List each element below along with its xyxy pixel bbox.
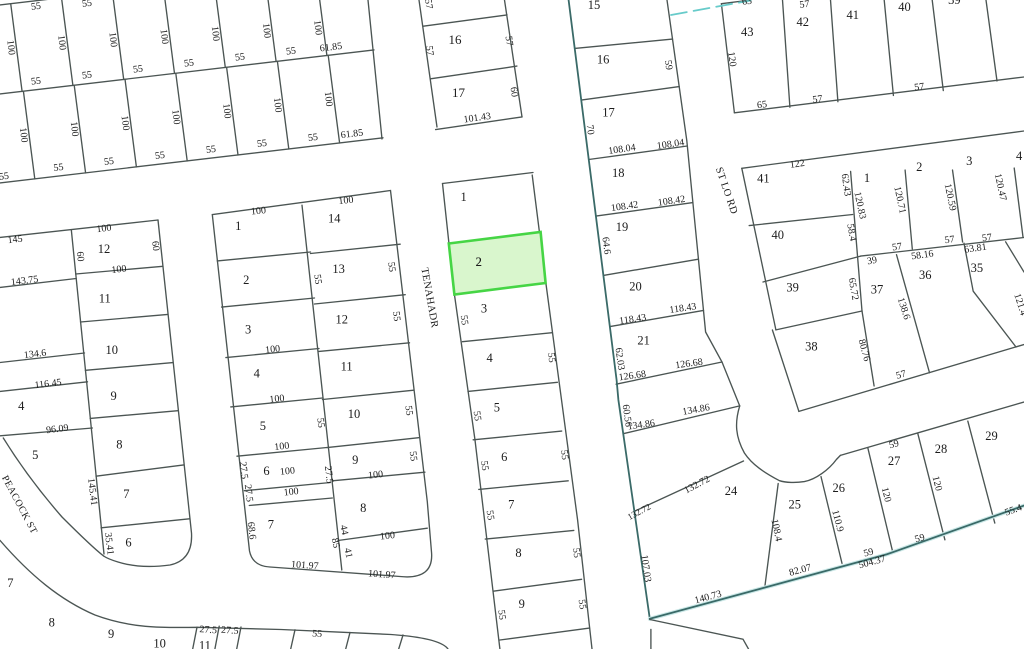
svg-text:26: 26 <box>832 481 845 495</box>
svg-text:57: 57 <box>503 35 515 46</box>
svg-text:55: 55 <box>30 1 41 13</box>
svg-text:100: 100 <box>379 530 395 543</box>
svg-text:14: 14 <box>328 211 341 225</box>
svg-text:100: 100 <box>271 97 284 113</box>
svg-text:20: 20 <box>629 280 642 294</box>
svg-text:55: 55 <box>307 132 318 144</box>
svg-text:55: 55 <box>256 138 267 150</box>
svg-text:17: 17 <box>602 105 615 119</box>
svg-text:8: 8 <box>116 437 122 451</box>
svg-text:4: 4 <box>18 399 25 413</box>
svg-text:9: 9 <box>108 627 114 641</box>
svg-text:70: 70 <box>584 124 596 135</box>
svg-text:27: 27 <box>888 454 901 468</box>
svg-text:36: 36 <box>919 268 932 282</box>
svg-text:16: 16 <box>597 53 610 67</box>
svg-text:27.5: 27.5 <box>322 465 335 484</box>
svg-text:100: 100 <box>322 91 335 107</box>
svg-text:55: 55 <box>385 261 397 272</box>
svg-text:2: 2 <box>916 160 922 174</box>
svg-text:19: 19 <box>616 220 629 234</box>
svg-text:43: 43 <box>741 25 754 39</box>
svg-text:55: 55 <box>0 171 10 183</box>
svg-text:5: 5 <box>32 448 38 462</box>
svg-text:63: 63 <box>741 0 752 8</box>
svg-text:59: 59 <box>662 59 674 70</box>
svg-text:100: 100 <box>96 222 112 235</box>
svg-text:55: 55 <box>30 76 41 88</box>
svg-text:55: 55 <box>471 410 483 421</box>
svg-text:60: 60 <box>149 240 161 251</box>
svg-text:3: 3 <box>245 322 251 336</box>
svg-text:11: 11 <box>341 359 353 373</box>
svg-text:29: 29 <box>985 429 998 443</box>
svg-text:1: 1 <box>460 190 466 204</box>
svg-text:100: 100 <box>338 195 354 208</box>
svg-text:4: 4 <box>254 367 261 381</box>
svg-text:57: 57 <box>944 234 955 246</box>
svg-text:55: 55 <box>390 311 402 322</box>
svg-text:100: 100 <box>17 127 30 143</box>
svg-text:39: 39 <box>786 280 799 294</box>
svg-text:55: 55 <box>132 63 143 75</box>
svg-text:1: 1 <box>864 171 870 185</box>
svg-text:60: 60 <box>74 251 86 262</box>
svg-text:101.97: 101.97 <box>291 559 319 572</box>
svg-text:10: 10 <box>105 343 118 357</box>
svg-text:55: 55 <box>285 45 296 57</box>
svg-text:55: 55 <box>402 405 414 416</box>
svg-text:55: 55 <box>183 57 194 69</box>
svg-text:57: 57 <box>422 0 434 10</box>
svg-text:3: 3 <box>966 154 972 168</box>
svg-text:27.5: 27.5 <box>221 625 239 637</box>
svg-text:100: 100 <box>283 486 299 499</box>
svg-text:55: 55 <box>558 449 570 460</box>
svg-text:55: 55 <box>154 150 165 162</box>
svg-text:100: 100 <box>260 23 273 39</box>
svg-text:35: 35 <box>971 261 984 275</box>
svg-text:2: 2 <box>476 255 482 269</box>
svg-text:57: 57 <box>981 232 992 244</box>
svg-text:100: 100 <box>269 393 285 406</box>
svg-text:10: 10 <box>348 407 361 421</box>
svg-text:2: 2 <box>243 273 249 287</box>
svg-text:65: 65 <box>756 99 767 111</box>
svg-text:27.5: 27.5 <box>237 461 250 480</box>
svg-text:7: 7 <box>508 498 514 512</box>
svg-text:12: 12 <box>98 242 111 256</box>
svg-text:7: 7 <box>268 518 274 532</box>
svg-text:55: 55 <box>495 609 507 620</box>
svg-text:55: 55 <box>407 451 419 462</box>
svg-text:21: 21 <box>637 334 650 348</box>
svg-text:9: 9 <box>352 453 358 467</box>
svg-text:55: 55 <box>545 352 557 363</box>
svg-text:55: 55 <box>484 510 496 521</box>
svg-text:100: 100 <box>209 26 222 42</box>
svg-text:55: 55 <box>81 69 92 81</box>
svg-text:100: 100 <box>250 205 266 218</box>
svg-text:11: 11 <box>99 292 111 306</box>
svg-text:6: 6 <box>125 536 131 550</box>
svg-text:100: 100 <box>311 20 324 36</box>
svg-text:40: 40 <box>898 0 911 14</box>
svg-text:100: 100 <box>279 465 295 478</box>
svg-text:55: 55 <box>478 460 490 471</box>
svg-text:57: 57 <box>423 45 435 56</box>
svg-text:17: 17 <box>452 85 466 100</box>
svg-text:145: 145 <box>7 234 23 247</box>
svg-text:100: 100 <box>265 344 281 357</box>
svg-text:100: 100 <box>68 121 81 137</box>
svg-text:55: 55 <box>314 417 326 428</box>
svg-text:9: 9 <box>519 597 525 611</box>
svg-text:25: 25 <box>789 497 802 511</box>
svg-text:28: 28 <box>935 442 948 456</box>
svg-text:55: 55 <box>311 274 323 285</box>
svg-text:101.97: 101.97 <box>368 568 396 581</box>
svg-text:27.5: 27.5 <box>199 624 217 636</box>
svg-text:120: 120 <box>725 51 738 67</box>
svg-text:55: 55 <box>576 599 588 610</box>
svg-text:40: 40 <box>771 228 784 242</box>
svg-text:38: 38 <box>805 340 818 354</box>
svg-text:57: 57 <box>914 81 925 93</box>
svg-text:100: 100 <box>169 109 182 125</box>
svg-text:100: 100 <box>106 32 119 48</box>
svg-text:9: 9 <box>110 389 116 403</box>
svg-text:24: 24 <box>725 484 738 498</box>
svg-text:13: 13 <box>332 262 345 276</box>
svg-text:4: 4 <box>486 351 493 365</box>
svg-text:8: 8 <box>515 546 521 560</box>
svg-text:42: 42 <box>797 15 810 29</box>
svg-text:8: 8 <box>360 501 366 515</box>
svg-text:39: 39 <box>866 255 878 268</box>
svg-text:55: 55 <box>53 162 64 174</box>
svg-text:15: 15 <box>588 0 601 12</box>
svg-text:55: 55 <box>103 156 114 168</box>
svg-text:6: 6 <box>263 464 269 478</box>
svg-text:16: 16 <box>449 32 463 47</box>
svg-text:100: 100 <box>158 29 171 45</box>
svg-text:60: 60 <box>508 86 520 97</box>
svg-text:57: 57 <box>812 94 823 106</box>
svg-text:100: 100 <box>368 469 384 482</box>
svg-text:8: 8 <box>49 616 55 630</box>
svg-text:37: 37 <box>871 282 884 296</box>
svg-text:18: 18 <box>612 166 625 180</box>
svg-text:6: 6 <box>501 450 507 464</box>
svg-text:5: 5 <box>260 419 266 433</box>
svg-text:12: 12 <box>335 312 348 326</box>
svg-text:11: 11 <box>199 638 211 649</box>
svg-text:100: 100 <box>111 264 127 277</box>
svg-text:57: 57 <box>891 241 902 253</box>
svg-text:100: 100 <box>220 103 233 119</box>
svg-text:55: 55 <box>312 628 323 640</box>
svg-text:5: 5 <box>494 401 500 415</box>
svg-text:100: 100 <box>4 39 17 55</box>
svg-text:57: 57 <box>799 0 810 11</box>
svg-text:27.5: 27.5 <box>242 484 255 503</box>
svg-text:55: 55 <box>205 144 216 156</box>
svg-text:39: 39 <box>948 0 961 7</box>
svg-text:55: 55 <box>458 314 470 325</box>
svg-text:68.6: 68.6 <box>245 521 258 540</box>
svg-text:41: 41 <box>757 172 770 186</box>
svg-text:3: 3 <box>481 301 487 315</box>
svg-text:100: 100 <box>55 35 68 51</box>
svg-text:100: 100 <box>119 115 132 131</box>
svg-text:1: 1 <box>235 219 241 233</box>
svg-text:100: 100 <box>274 441 290 454</box>
svg-text:55: 55 <box>570 547 582 558</box>
svg-text:55: 55 <box>81 0 92 10</box>
svg-text:55: 55 <box>234 51 245 63</box>
svg-text:4: 4 <box>1016 149 1023 163</box>
svg-text:7: 7 <box>123 487 129 501</box>
svg-text:122: 122 <box>789 158 805 171</box>
svg-text:7: 7 <box>7 576 13 590</box>
svg-text:10: 10 <box>153 636 166 649</box>
svg-text:41: 41 <box>846 8 859 22</box>
